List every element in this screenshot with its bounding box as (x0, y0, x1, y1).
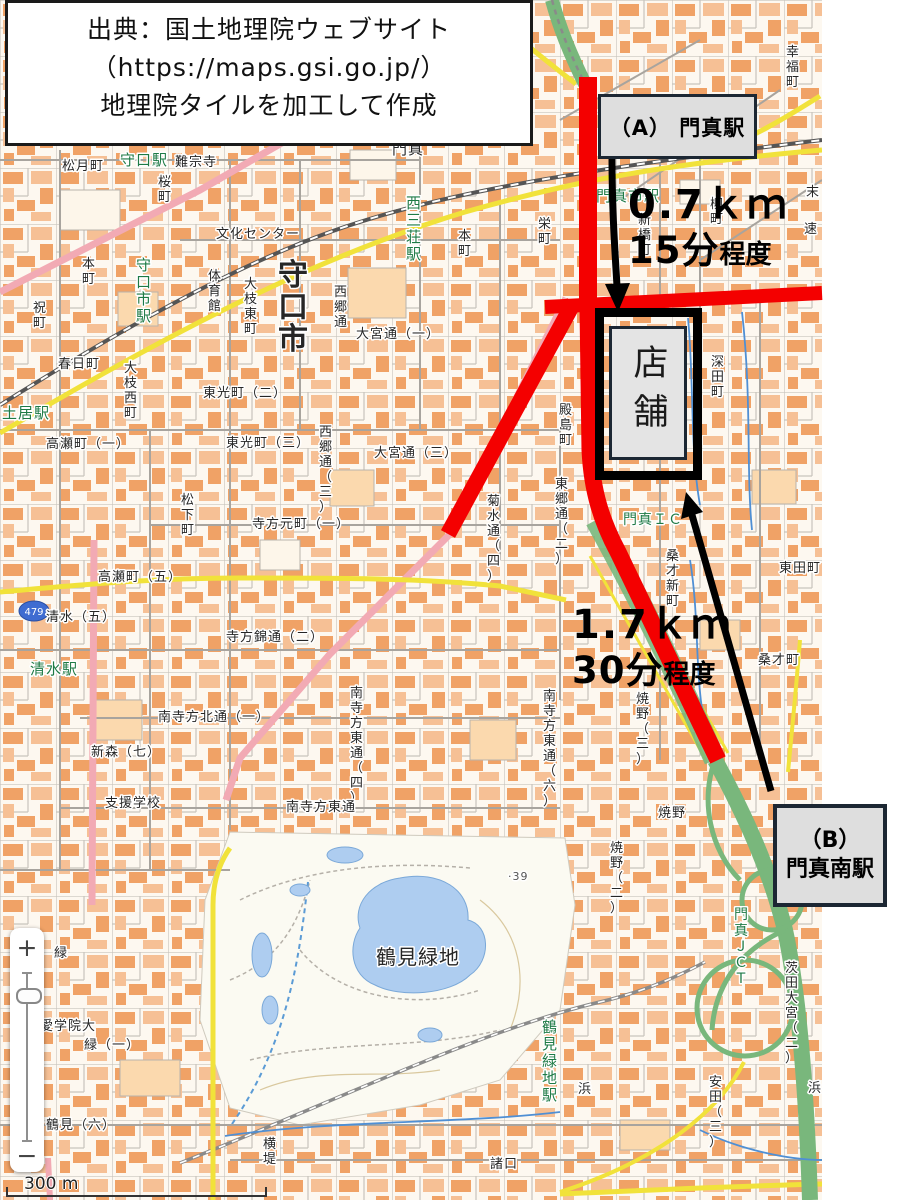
map-label: 深田町 (711, 355, 725, 400)
station-b-label-line2: 門真南駅 (786, 856, 874, 885)
map-label: 難宗寺 (175, 154, 217, 170)
attribution-line3: 地理院タイルを加工して作成 (8, 87, 530, 125)
map-label: 清水駅 (30, 660, 78, 678)
attribution-line1: 出典：国土地理院ウェブサイト (8, 11, 530, 49)
map-label: 寺方錦通（二） (226, 629, 324, 645)
map-label: 鶴見緑地 (376, 945, 460, 969)
store-label: 店舗 (623, 344, 674, 442)
map-label: 門真ＩＣ (623, 512, 683, 528)
map-label: 諸口 (490, 1156, 518, 1172)
map-label: 守口駅 (120, 151, 168, 169)
map-label: 西三荘駅 (406, 194, 422, 263)
map-label: 桑才新町 (666, 549, 680, 609)
route-shield-number: 479 (24, 607, 43, 618)
map-label: 桑才町 (758, 653, 800, 668)
map-label: 土居駅 (2, 404, 50, 422)
route-shield-479: 479 (19, 601, 49, 621)
map-label: 焼野 (658, 806, 686, 821)
map-label: 高瀬町（一） (46, 436, 130, 452)
map-label: 守口市 (278, 258, 309, 357)
map-label: 大宮通（一） (356, 326, 440, 342)
map-label: 守口市駅 (136, 256, 152, 325)
map-label: 愛学院大 (40, 1018, 96, 1034)
map-canvas[interactable]: 479 守口駅松月町難宗寺桜町本町祝町守口市駅春日町大枝西町土居駅文化センター守… (0, 0, 897, 1200)
map-label: 門真ＪＣＴ (734, 907, 749, 987)
zoom-control: + − (10, 928, 44, 1172)
station-b-label-line1: （B） (800, 827, 861, 856)
map-label: 大枝西町 (124, 361, 138, 421)
route-b-duration-note: 程度 (664, 660, 716, 690)
zoom-in-button[interactable]: + (10, 932, 44, 962)
map-label: 茨田大宮（二） (785, 961, 799, 1066)
map-label: 本町 (82, 257, 96, 287)
map-label: 南寺方東通 (286, 799, 356, 815)
map-label: 東光町（二） (203, 385, 287, 401)
map-label: 桜町 (158, 175, 172, 205)
map-label: 西郷通（三） (319, 425, 333, 515)
map-label: 西郷通 (334, 285, 348, 330)
map-label: 緑（一） (84, 1038, 140, 1053)
map-label: 速 (804, 222, 818, 237)
map-label: 文化センター (216, 227, 300, 242)
map-label: 東田町 (779, 560, 821, 576)
map-label: 殿島町 (559, 403, 573, 448)
map-label: 東郷通（二） (555, 476, 569, 567)
map-label: 焼野（三） (636, 692, 650, 767)
base-map: 479 守口駅松月町難宗寺桜町本町祝町守口市駅春日町大枝西町土居駅文化センター守… (0, 0, 897, 1200)
route-a-duration: 15分 (628, 229, 720, 272)
attribution-box: 出典：国土地理院ウェブサイト （https://maps.gsi.go.jp/）… (5, 0, 533, 146)
map-label: 大枝東町 (244, 277, 258, 337)
map-label: 鶴見（六） (46, 1117, 116, 1133)
map-label: 支援学校 (105, 795, 161, 811)
station-a-box: （A） 門真駅 (598, 94, 757, 159)
map-label: 松下町 (181, 493, 195, 538)
route-b-duration: 30分 (572, 649, 664, 692)
map-label: 末 (806, 185, 820, 200)
map-label: 横堤 (263, 1137, 277, 1167)
map-label: 春日町 (58, 357, 100, 372)
store-box: 店舗 (609, 326, 687, 460)
station-b-box: （B） 門真南駅 (773, 804, 887, 907)
zoom-slider-handle[interactable] (16, 988, 42, 1004)
route-b-distance: 1.7ｋｍ (572, 602, 733, 649)
map-label: 栄町 (538, 217, 552, 247)
station-a-label: （A） 門真駅 (610, 112, 746, 142)
map-label: 南寺方東通（四） (350, 685, 364, 806)
map-label: 幸福町 (786, 45, 800, 90)
map-label: 寺方元町（一） (252, 516, 350, 532)
map-label: 安田（三） (709, 1075, 723, 1150)
map-label: 浜 (578, 1082, 592, 1097)
route-a-distance-text: 0.7ｋｍ 15分程度 (628, 182, 789, 273)
map-label: 新森（七） (91, 744, 161, 760)
route-a-duration-note: 程度 (720, 240, 772, 270)
map-label: 高瀬町（五） (98, 569, 182, 585)
zoom-out-button[interactable]: − (10, 1140, 44, 1170)
map-label: 東光町（三） (226, 435, 310, 451)
scale-label: 300 m (24, 1174, 78, 1194)
map-label: 浜 (808, 1081, 822, 1096)
map-label: 鶴見緑地駅 (542, 1018, 558, 1104)
map-label: 緑 (54, 946, 68, 961)
attribution-line2: （https://maps.gsi.go.jp/） (8, 49, 530, 87)
map-label: 松月町 (62, 159, 104, 174)
map-label: 祝町 (33, 301, 47, 331)
map-label: 菊水通（四） (487, 494, 501, 584)
screenshot-stage: 479 守口駅松月町難宗寺桜町本町祝町守口市駅春日町大枝西町土居駅文化センター守… (0, 0, 897, 1200)
map-label: 大宮通（三） (374, 445, 458, 461)
map-label: 体育館 (208, 269, 222, 314)
map-label: 清水（五） (46, 610, 116, 625)
route-b-distance-text: 1.7ｋｍ 30分程度 (572, 602, 733, 693)
map-label: 南寺方北通（一） (158, 709, 270, 725)
route-a-distance: 0.7ｋｍ (628, 182, 789, 229)
map-label: 南寺方東通（六） (543, 688, 557, 809)
map-label: 焼野（二） (610, 841, 624, 916)
map-label: 本町 (458, 229, 472, 259)
map-label: ·39 (508, 870, 529, 883)
right-margin (822, 0, 897, 1200)
